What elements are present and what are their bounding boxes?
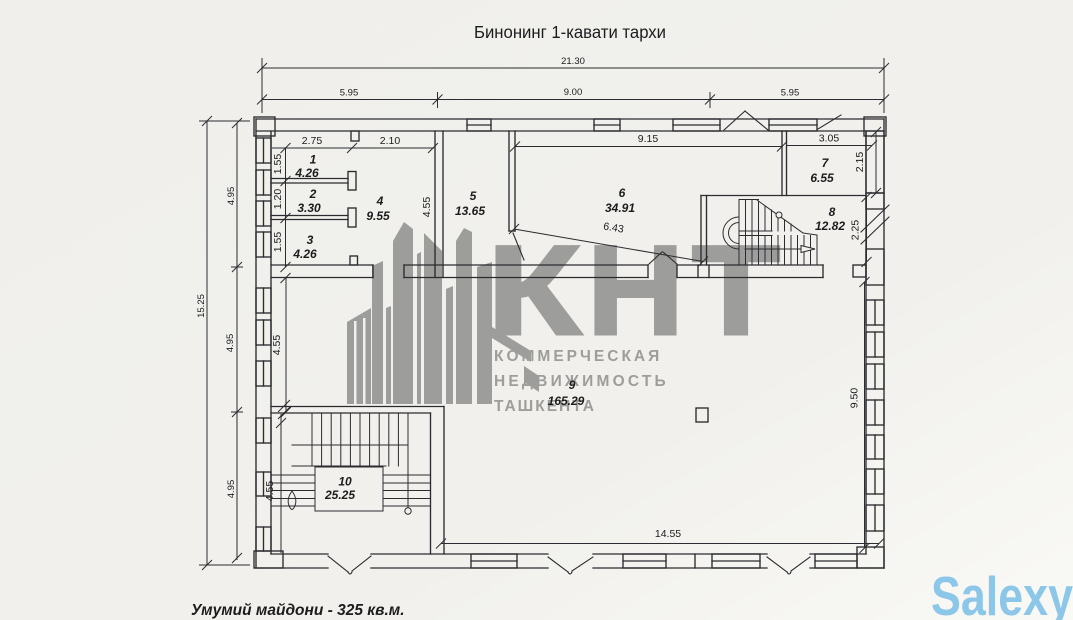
svg-text:9.00: 9.00 bbox=[564, 87, 583, 98]
svg-text:14.55: 14.55 bbox=[655, 528, 681, 540]
svg-text:1.55: 1.55 bbox=[272, 232, 284, 253]
svg-text:2.15: 2.15 bbox=[854, 152, 866, 173]
svg-text:Н: Н bbox=[587, 219, 684, 361]
svg-text:2.25: 2.25 bbox=[850, 220, 862, 241]
svg-text:4.55: 4.55 bbox=[271, 335, 283, 356]
svg-text:4.95: 4.95 bbox=[226, 480, 237, 499]
svg-text:4.26: 4.26 bbox=[292, 247, 317, 261]
svg-text:5: 5 bbox=[470, 189, 477, 203]
svg-text:3.05: 3.05 bbox=[819, 133, 840, 145]
svg-text:4.55: 4.55 bbox=[264, 481, 276, 502]
svg-text:КОММЕРЧЕСКАЯ: КОММЕРЧЕСКАЯ bbox=[494, 348, 662, 365]
svg-text:4.55: 4.55 bbox=[421, 197, 433, 218]
svg-text:21.30: 21.30 bbox=[561, 56, 585, 67]
svg-text:15.25: 15.25 bbox=[196, 294, 207, 318]
svg-text:4: 4 bbox=[376, 194, 384, 208]
svg-text:3: 3 bbox=[307, 233, 314, 247]
svg-text:5.95: 5.95 bbox=[340, 88, 359, 99]
svg-text:25.25: 25.25 bbox=[324, 488, 355, 502]
svg-text:4.95: 4.95 bbox=[226, 187, 237, 206]
svg-text:6.55: 6.55 bbox=[810, 171, 834, 185]
svg-text:4.26: 4.26 bbox=[294, 166, 319, 180]
svg-text:4.95: 4.95 bbox=[225, 334, 236, 353]
svg-text:34.91: 34.91 bbox=[605, 201, 635, 215]
svg-text:Т: Т bbox=[692, 219, 780, 361]
svg-text:Бинонинг 1-кавати тархи: Бинонинг 1-кавати тархи bbox=[474, 22, 666, 42]
svg-text:9: 9 bbox=[569, 378, 576, 392]
svg-text:5.95: 5.95 bbox=[781, 88, 800, 99]
svg-text:1: 1 bbox=[310, 153, 317, 167]
svg-text:6: 6 bbox=[619, 186, 626, 200]
svg-text:9.15: 9.15 bbox=[638, 133, 659, 145]
svg-text:3.30: 3.30 bbox=[297, 201, 321, 215]
svg-text:К: К bbox=[487, 219, 582, 361]
svg-text:165.29: 165.29 bbox=[548, 394, 585, 408]
svg-text:12.82: 12.82 bbox=[815, 219, 845, 233]
svg-text:9.50: 9.50 bbox=[849, 388, 861, 409]
svg-text:Умумий майдони - 325 кв.м.: Умумий майдони - 325 кв.м. bbox=[191, 602, 405, 619]
svg-text:2.10: 2.10 bbox=[380, 135, 401, 147]
svg-text:13.65: 13.65 bbox=[455, 204, 485, 218]
svg-text:1.55: 1.55 bbox=[272, 154, 284, 175]
svg-text:8: 8 bbox=[829, 205, 836, 219]
svg-text:1.20: 1.20 bbox=[272, 189, 284, 210]
svg-text:10: 10 bbox=[338, 475, 352, 489]
svg-text:НЕДВИЖИМОСТЬ: НЕДВИЖИМОСТЬ bbox=[494, 373, 669, 390]
svg-text:9.55: 9.55 bbox=[366, 209, 390, 223]
svg-text:Salexy: Salexy bbox=[931, 565, 1073, 620]
svg-text:2.75: 2.75 bbox=[302, 135, 323, 147]
svg-text:2: 2 bbox=[309, 187, 317, 201]
